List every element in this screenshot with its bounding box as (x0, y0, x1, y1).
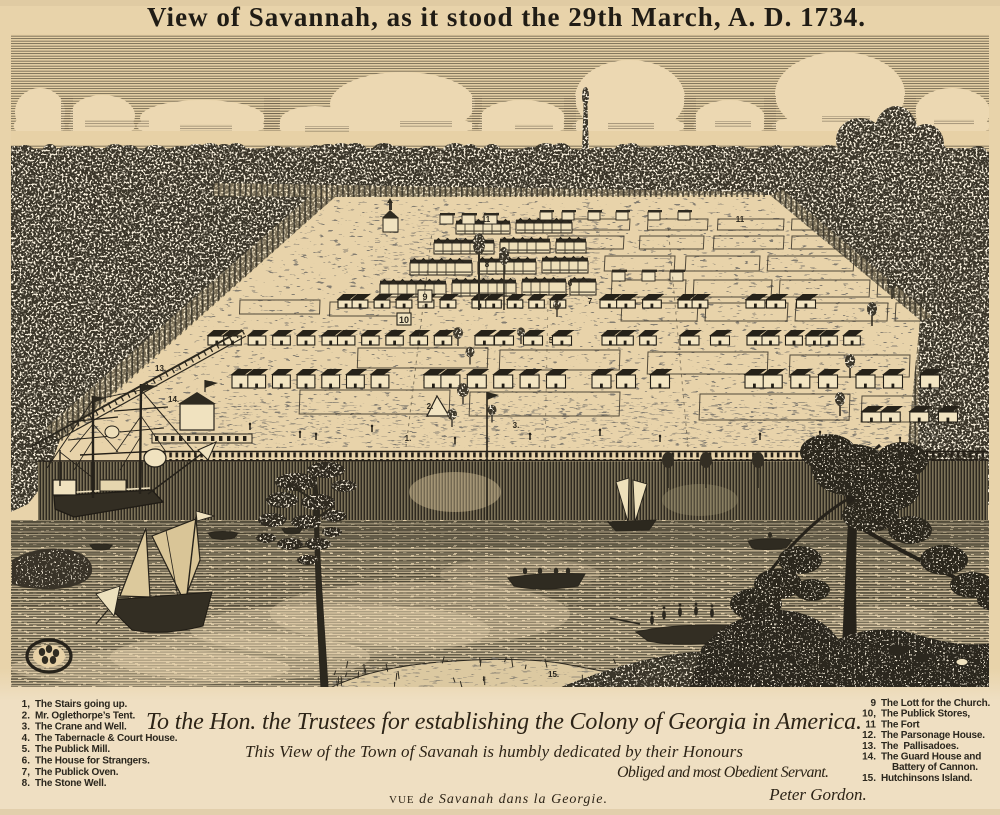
svg-text:10,: 10, (862, 709, 876, 720)
svg-text:8: 8 (485, 260, 490, 269)
svg-text:The Fort: The Fort (881, 719, 920, 730)
svg-text:Obliged and most Obedient Serv: Obliged and most Obedient Servant. (617, 764, 829, 781)
svg-text:5.: 5. (22, 744, 31, 755)
svg-text:The Stone Well.: The Stone Well. (35, 778, 107, 789)
svg-text:1,: 1, (22, 699, 31, 710)
svg-text:11: 11 (865, 719, 876, 730)
svg-text:Hutchinsons Island.: Hutchinsons Island. (881, 773, 973, 784)
svg-text:11: 11 (736, 215, 745, 224)
svg-text:3.: 3. (513, 421, 520, 430)
svg-text:Mr. Oglethorpe’s Tent.: Mr. Oglethorpe’s Tent. (35, 710, 135, 721)
svg-text:VUE de Savanah dans la Georgie: VUE de Savanah dans la Georgie. (389, 792, 607, 807)
svg-text:5: 5 (549, 336, 554, 345)
svg-text:6: 6 (568, 279, 573, 288)
svg-text:10: 10 (399, 315, 409, 325)
svg-text:7,: 7, (22, 767, 31, 778)
svg-text:13.: 13. (862, 741, 876, 752)
svg-text:The Lott for the Church.: The Lott for the Church. (881, 698, 990, 709)
svg-text:This View of the Town of Savan: This View of the Town of Savanah is humb… (245, 742, 743, 761)
svg-text:The Publick Oven.: The Publick Oven. (35, 767, 119, 778)
svg-text:The Parsonage House.: The Parsonage House. (881, 730, 985, 741)
svg-text:12.: 12. (862, 730, 876, 741)
svg-text:The Guard House and: The Guard House and (881, 752, 981, 763)
svg-text:3.: 3. (22, 722, 31, 733)
svg-text:14.: 14. (168, 395, 179, 404)
svg-text:15.: 15. (548, 670, 559, 679)
svg-text:The Pallisadoes.: The Pallisadoes. (881, 741, 959, 752)
svg-text:The Publick Mill.: The Publick Mill. (35, 744, 110, 755)
svg-text:The Stairs going up.: The Stairs going up. (35, 699, 128, 710)
svg-text:14.: 14. (862, 752, 876, 763)
svg-text:2.: 2. (22, 710, 31, 721)
svg-text:The Crane and Well.: The Crane and Well. (35, 722, 127, 733)
svg-text:8.: 8. (22, 778, 31, 789)
svg-text:2.: 2. (427, 402, 434, 411)
svg-text:To the Hon. the Trustees for e: To the Hon. the Trustees for establishin… (146, 709, 862, 735)
svg-text:The House for Strangers.: The House for Strangers. (35, 756, 150, 767)
svg-text:Peter Gordon.: Peter Gordon. (768, 785, 867, 804)
svg-text:15.: 15. (862, 773, 876, 784)
svg-text:9: 9 (870, 698, 876, 709)
svg-text:11: 11 (482, 215, 491, 224)
svg-text:The Publick Stores,: The Publick Stores, (881, 709, 970, 720)
svg-text:4.: 4. (22, 733, 31, 744)
svg-text:13.: 13. (155, 364, 166, 373)
svg-text:View of Savannah, as it stood: View of Savannah, as it stood the 29th M… (147, 2, 865, 32)
svg-text:1.: 1. (405, 434, 412, 443)
svg-text:7: 7 (588, 297, 593, 306)
svg-text:Battery of Cannon.: Battery of Cannon. (892, 762, 978, 773)
svg-text:6.: 6. (22, 756, 31, 767)
